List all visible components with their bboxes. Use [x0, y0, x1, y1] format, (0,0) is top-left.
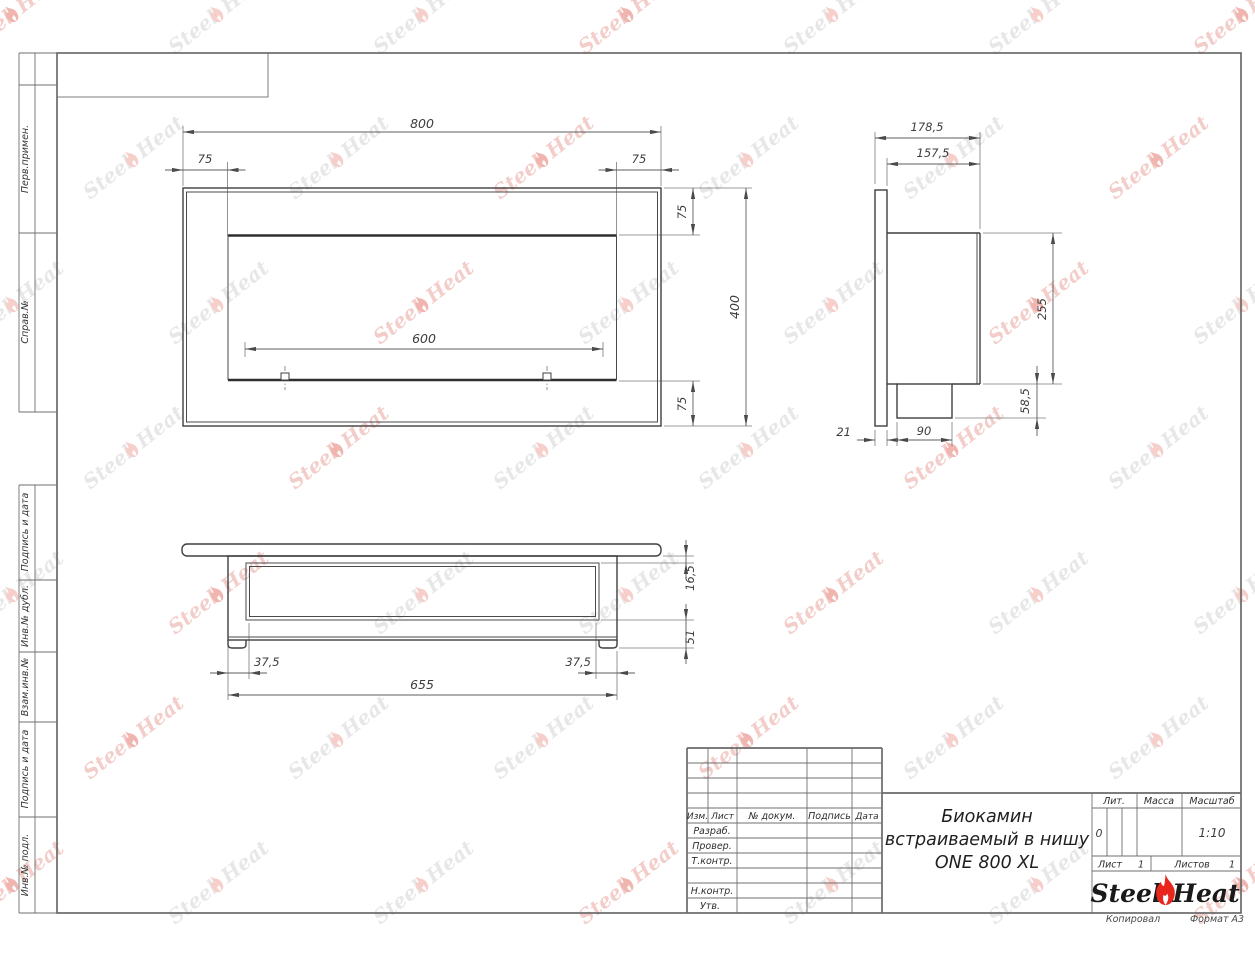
watermark: Steel Heat: [0, 545, 69, 639]
tb-row-razrab: Разраб.: [693, 826, 730, 837]
tb-col-sign: Подпись: [808, 811, 851, 822]
title-block: Изм. Лист № докум. Подпись Дата Разраб. …: [687, 748, 1241, 913]
watermark: Steel Heat: [778, 0, 889, 59]
top-left-stamp-box: [57, 53, 268, 97]
margin-label-perv: Перв.примен.: [20, 125, 31, 193]
copied-note: Копировал: [1106, 914, 1160, 925]
watermark-heat-text: Heat: [540, 400, 599, 453]
watermark: Steel Heat: [0, 255, 69, 349]
watermark-heat-text: Heat: [950, 110, 1009, 163]
dim-side-bottom-depth: 90: [917, 424, 932, 438]
watermark: Steel Heat: [488, 690, 599, 784]
watermark-heat-text: Heat: [540, 690, 599, 743]
tb-col-date: Дата: [854, 812, 878, 822]
watermark: Steel Heat: [488, 110, 599, 204]
margin-label-inv-podl: Инв.№ подл.: [20, 834, 31, 897]
title-line-3: ONE 800 XL: [935, 853, 1039, 873]
dim-front-flange-bottom: 75: [675, 397, 689, 412]
format-note: Формат А3: [1190, 914, 1244, 925]
watermark: Steel Heat: [163, 0, 274, 59]
watermark-heat-text: Heat: [745, 110, 804, 163]
tb-col-izm: Изм.: [687, 812, 708, 822]
watermark: Steel Heat: [898, 690, 1009, 784]
watermark: Steel Heat: [983, 545, 1094, 639]
watermark: Steel Heat: [0, 0, 69, 59]
watermark-heat-text: Heat: [215, 835, 274, 888]
drawing-canvas: Steel Heat Steel Heat Steel Heat Steel H…: [0, 0, 1255, 970]
tb-scale-label: Масштаб: [1189, 796, 1234, 807]
watermark: Steel Heat: [163, 545, 274, 639]
watermark-heat-text: Heat: [830, 545, 889, 598]
dim-side-depth-body: 157,5: [917, 146, 950, 160]
watermark-heat-text: Heat: [745, 690, 804, 743]
watermark-heat-text: Heat: [130, 400, 189, 453]
title-line-2: встраиваемый в нишу: [885, 830, 1090, 850]
watermark-heat-text: Heat: [1155, 690, 1214, 743]
dim-front-flange-right: 75: [632, 152, 647, 166]
watermark-layer: Steel Heat Steel Heat Steel Heat Steel H…: [0, 0, 1255, 929]
side-body: [887, 233, 980, 384]
margin-label-podpis2: Подпись и дата: [20, 729, 31, 808]
watermark-heat-text: Heat: [625, 835, 684, 888]
side-bottom-box: [897, 384, 952, 418]
watermark-heat-text: Heat: [1155, 110, 1214, 163]
dim-side-body-height: 255: [1035, 298, 1049, 320]
tb-sheets-label: Листов: [1173, 860, 1210, 871]
watermark: Steel Heat: [283, 110, 394, 204]
margin-label-sprav: Справ.№: [20, 300, 31, 343]
tb-sheet-value: 1: [1138, 860, 1144, 871]
watermark: Steel Heat: [1103, 690, 1214, 784]
watermark-heat-text: Heat: [215, 0, 274, 18]
sheet-frame: Перв.примен. Справ.№ Подпись и дата Инв.…: [19, 53, 1241, 913]
watermark-heat-text: Heat: [420, 0, 479, 18]
watermark-heat-text: Heat: [420, 835, 479, 888]
watermark-heat-text: Heat: [215, 545, 274, 598]
watermark: Steel Heat: [0, 835, 69, 929]
margin-label-podpis1: Подпись и дата: [20, 492, 31, 571]
watermark: Steel Heat: [78, 400, 189, 494]
tb-col-list: Лист: [710, 812, 735, 822]
title-line-1: Биокамин: [941, 807, 1032, 827]
watermark: Steel Heat: [1188, 255, 1255, 349]
watermark-heat-text: Heat: [950, 400, 1009, 453]
watermark: Steel Heat: [693, 400, 804, 494]
watermark-heat-text: Heat: [335, 690, 394, 743]
dim-front-flange-top: 75: [675, 205, 689, 220]
watermark: Steel Heat: [693, 110, 804, 204]
watermark: Steel Heat: [778, 835, 889, 929]
watermark-heat-text: Heat: [335, 110, 394, 163]
tb-lit-label: Лит.: [1102, 796, 1125, 807]
watermark: Steel Heat: [778, 545, 889, 639]
dim-front-height: 400: [727, 295, 742, 319]
watermark: Steel Heat: [163, 835, 274, 929]
watermark: Steel Heat: [1103, 400, 1214, 494]
dim-side-flange-thickness: 21: [836, 425, 851, 439]
watermark: Steel Heat: [283, 400, 394, 494]
watermark-heat-text: Heat: [745, 400, 804, 453]
tb-sheets-value: 1: [1229, 860, 1235, 871]
watermark-heat-text: Heat: [950, 690, 1009, 743]
dim-bottom-top-inset: 16,5: [683, 565, 697, 591]
watermark-heat-text: Heat: [420, 255, 479, 308]
watermark: Steel Heat: [488, 400, 599, 494]
watermark: Steel Heat: [1188, 0, 1255, 59]
tb-row-utv: Утв.: [700, 901, 720, 912]
watermark: Steel Heat: [368, 545, 479, 639]
watermark-heat-text: Heat: [420, 545, 479, 598]
watermark-heat-text: Heat: [625, 545, 684, 598]
watermark: Steel Heat: [983, 0, 1094, 59]
bottom-feet: [228, 640, 617, 648]
drawing-sheet: Steel Heat Steel Heat Steel Heat Steel H…: [0, 0, 1255, 970]
margin-label-inv-dubl: Инв.№ дубл.: [20, 585, 31, 647]
watermark-heat-text: Heat: [130, 690, 189, 743]
watermark: Steel Heat: [573, 0, 684, 59]
tb-row-tkontr: Т.контр.: [691, 856, 732, 867]
watermark-heat-text: Heat: [625, 255, 684, 308]
watermark-heat-text: Heat: [625, 0, 684, 18]
dim-bottom-inset-left: 37,5: [254, 655, 280, 669]
dim-side-bottom-height: 58,5: [1018, 388, 1032, 414]
watermark-heat-text: Heat: [830, 835, 889, 888]
margin-label-vzam: Взам.инв.№: [20, 658, 31, 717]
watermark: Steel Heat: [573, 545, 684, 639]
dim-front-flange-left: 75: [198, 152, 213, 166]
tb-row-prover: Провер.: [692, 841, 731, 852]
watermark: Steel Heat: [898, 400, 1009, 494]
logo-steel-text: Steel: [1091, 879, 1162, 908]
watermark: Steel Heat: [778, 255, 889, 349]
watermark: Steel Heat: [78, 690, 189, 784]
dim-side-depth-total: 178,5: [911, 120, 944, 134]
watermark-heat-text: Heat: [830, 255, 889, 308]
side-flange: [875, 190, 887, 426]
dim-bottom-body-width: 655: [410, 677, 434, 692]
watermark: Steel Heat: [573, 835, 684, 929]
tb-lit-value: 0: [1096, 827, 1103, 840]
watermark-heat-text: Heat: [540, 110, 599, 163]
watermark: Steel Heat: [368, 0, 479, 59]
watermark-heat-text: Heat: [130, 110, 189, 163]
watermark: Steel Heat: [693, 690, 804, 784]
watermark: Steel Heat: [1188, 545, 1255, 639]
dim-bottom-body-depth: 51: [683, 630, 697, 645]
tb-sheet-label: Лист: [1097, 860, 1123, 871]
watermark: Steel Heat: [573, 255, 684, 349]
tb-col-doc: № докум.: [748, 811, 796, 822]
tb-mass-label: Масса: [1144, 796, 1174, 807]
watermark-heat-text: Heat: [215, 255, 274, 308]
tb-row-nkontr: Н.контр.: [691, 886, 734, 897]
watermark-heat-text: Heat: [1035, 545, 1094, 598]
watermark-heat-text: Heat: [830, 0, 889, 18]
watermark-heat-text: Heat: [1035, 0, 1094, 18]
watermark: Steel Heat: [163, 255, 274, 349]
dim-bottom-inset-right: 37,5: [565, 655, 591, 669]
dim-front-width: 800: [410, 116, 434, 131]
watermark-heat-text: Heat: [335, 400, 394, 453]
watermark: Steel Heat: [78, 110, 189, 204]
tb-scale-value: 1:10: [1199, 826, 1226, 840]
watermark-heat-text: Heat: [1155, 400, 1214, 453]
watermark: Steel Heat: [1103, 110, 1214, 204]
front-burner-tabs: [281, 366, 551, 390]
dim-front-opening: 600: [412, 331, 436, 346]
watermark-heat-text: Heat: [10, 0, 69, 18]
logo-heat-text: Heat: [1171, 879, 1240, 908]
watermark: Steel Heat: [283, 690, 394, 784]
steelheat-logo: Steel Heat: [1091, 874, 1241, 908]
watermark: Steel Heat: [368, 835, 479, 929]
